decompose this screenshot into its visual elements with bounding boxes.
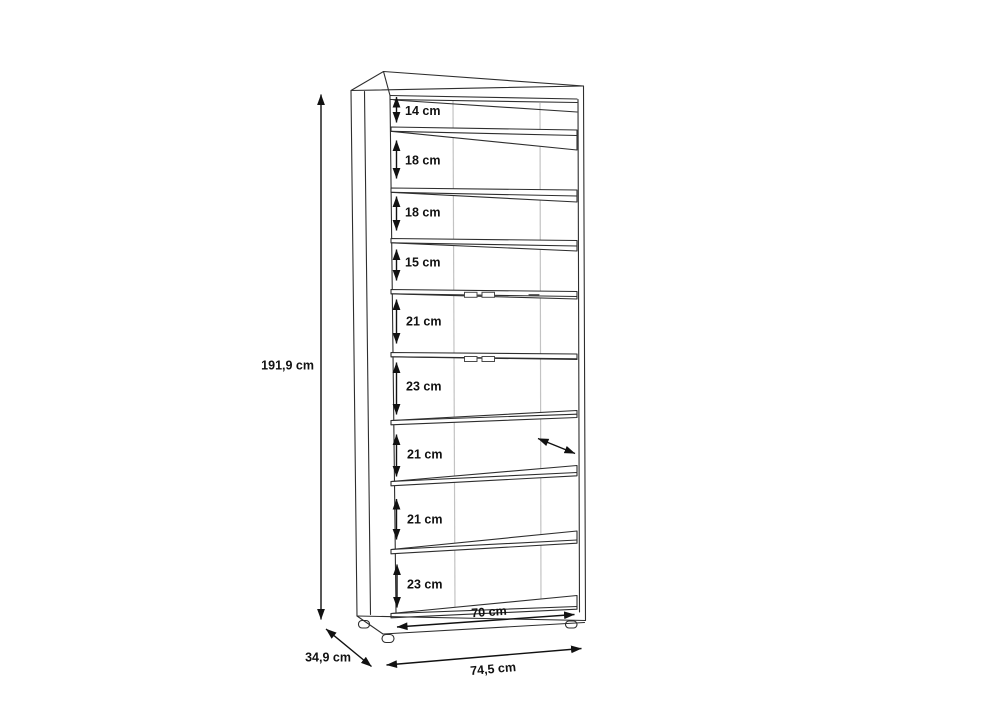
shelf-clip [465,292,478,297]
right-outer-edge [584,86,586,621]
height-dimension-label: 191,9 cm [261,359,314,373]
inner-width-label: 70 cm [471,604,507,620]
compartment-6-label: 23 cm [406,380,441,394]
diagram-canvas: 191,9 cm 14 cm 18 cm 18 cm 15 cm 21 cm 2… [0,0,1000,725]
plinth-bottom-edge [383,623,585,635]
ceiling-front-edge [390,96,577,100]
compartment-3-label: 18 cm [405,206,440,220]
compartment-5-label: 21 cm [406,315,441,329]
left-panel-edge [365,92,371,615]
compartment-9-label: 23 cm [407,578,442,592]
cabinet-drawing [351,72,586,643]
compartment-4-label: 15 cm [405,256,440,270]
cabinet-diagram-svg: 191,9 cm 14 cm 18 cm 18 cm 15 cm 21 cm 2… [0,0,1000,725]
shelf-depth-arrow [538,439,575,454]
dimension-annotations: 191,9 cm 14 cm 18 cm 18 cm 15 cm 21 cm 2… [261,95,581,678]
shelf-board-6 [391,411,577,425]
shelf-board-7 [391,466,577,486]
shelf-clip [482,292,495,297]
depth-label: 34,9 cm [305,651,351,665]
interior-right-edge [578,100,580,613]
shelf-board-8 [391,531,577,554]
compartment-1-label: 14 cm [405,104,440,118]
shelf-board-1 [391,127,577,150]
shelf-clip [465,357,478,362]
shelf-board-2 [391,188,577,202]
shelf-board-3 [391,239,577,252]
outer-width-label: 74,5 cm [470,660,517,678]
compartment-2-label: 18 cm [405,154,440,168]
cabinet-foot-front-left [382,635,394,643]
compartment-7-label: 21 cm [407,448,442,462]
compartment-8-label: 21 cm [407,513,442,527]
cabinet-foot-right [566,621,578,628]
cabinet-foot-back-left [359,621,370,629]
shelf-clip [482,357,495,362]
left-outer-edge [351,91,357,617]
